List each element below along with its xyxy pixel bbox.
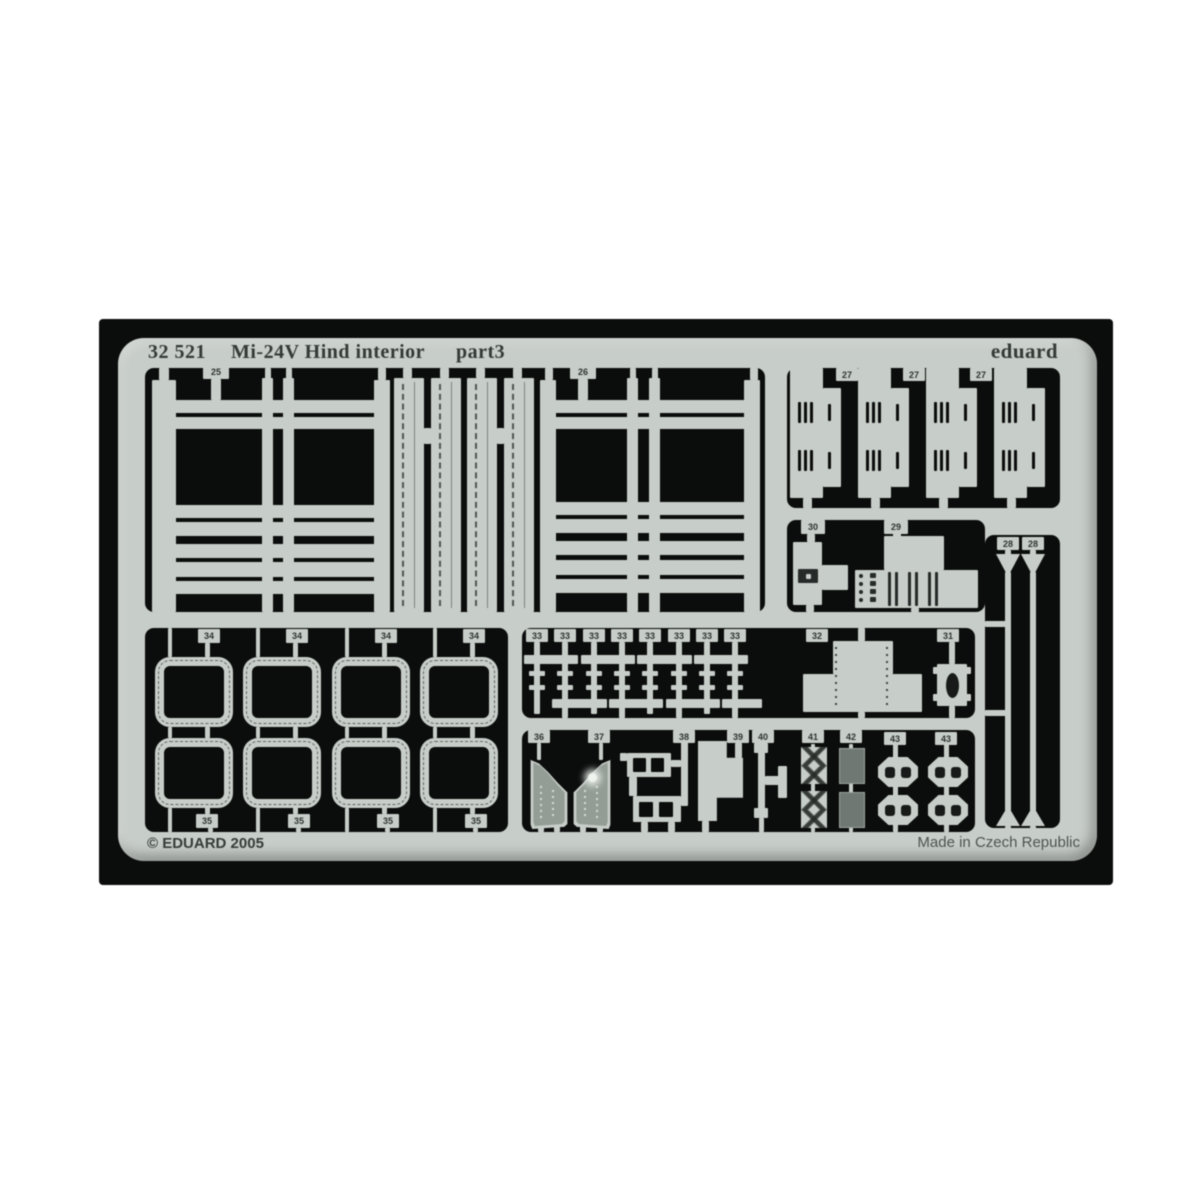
part-label-32: 32 — [806, 629, 828, 642]
etched-slot — [872, 402, 875, 423]
sprue-tab — [1030, 826, 1036, 832]
stitch-texture — [158, 741, 230, 805]
sprue-runner — [433, 808, 437, 832]
etched-slot — [828, 404, 831, 421]
part-27-panel — [959, 388, 977, 487]
sprue-tab — [985, 710, 1007, 716]
part-43-plate — [878, 795, 918, 825]
etched-slot — [1014, 402, 1017, 423]
part-label-33: 33 — [554, 629, 576, 642]
part-25-rail — [152, 544, 390, 558]
etched-slot — [804, 402, 807, 423]
pocket-28 — [985, 535, 1060, 828]
part-label-34: 34 — [286, 629, 308, 643]
sprue-tab — [803, 498, 812, 508]
part-26-post — [540, 380, 556, 612]
sprue-tab — [286, 368, 292, 380]
part-34-35-frame — [243, 738, 321, 808]
sprue-tab — [538, 826, 544, 832]
rivet-dots — [596, 786, 598, 822]
brand-logo: eduard — [938, 339, 1058, 364]
part-33-crossbar — [586, 671, 602, 676]
part-label-35: 35 — [377, 814, 399, 828]
fold-line — [402, 384, 404, 606]
fold-strip — [431, 378, 461, 612]
fold-strip — [394, 378, 424, 612]
rivet-dots — [584, 790, 586, 820]
etched-line — [888, 572, 891, 606]
sprue-tab — [858, 628, 865, 641]
part-label-33: 33 — [639, 629, 661, 642]
sprue-tab — [620, 753, 627, 761]
part-25-rail — [152, 522, 390, 536]
sprue-tab — [378, 368, 386, 380]
part-33-crossbar — [727, 685, 743, 690]
part-31-nub — [966, 694, 971, 701]
sprue-tab — [211, 379, 221, 400]
sprue-tab — [440, 368, 449, 378]
part-33-pin — [534, 642, 540, 714]
etched-slot — [798, 450, 801, 471]
part-label-38: 38 — [673, 730, 695, 743]
part-28-rod — [1030, 572, 1036, 811]
sprue-tab — [497, 428, 504, 444]
sprue-tab — [403, 368, 412, 378]
stitch-texture — [246, 741, 318, 805]
part-32-top — [833, 641, 893, 674]
sprue-tab — [205, 806, 210, 814]
etched-slot — [810, 402, 813, 423]
part-label-43: 43 — [884, 732, 906, 745]
sprue-tab — [652, 368, 658, 380]
part-34-35-frame — [155, 657, 233, 727]
part-25-rail — [152, 581, 390, 594]
part-27-panel — [790, 368, 823, 498]
sprue-runner — [256, 628, 260, 657]
sprue-tab — [1007, 498, 1016, 508]
part-26-rail — [540, 502, 760, 515]
part-25-rail — [152, 400, 390, 413]
part-label-36: 36 — [528, 730, 550, 743]
sprue-tab — [205, 643, 210, 657]
etch-line — [487, 382, 488, 608]
sheet-title: Mi-24V Hind interior — [231, 341, 425, 364]
fold-line — [475, 384, 477, 606]
part-26-rail — [540, 560, 760, 575]
sprue-tab — [470, 643, 475, 657]
cut-hole — [651, 758, 664, 772]
stitch-texture — [158, 660, 230, 724]
sprue-tab — [597, 826, 603, 832]
part-42-plate — [839, 792, 865, 828]
part-30-arm — [822, 565, 848, 590]
x-etch — [801, 766, 827, 785]
part-25-post — [152, 380, 176, 612]
part-label-35: 35 — [288, 814, 310, 828]
sprue-tab — [939, 498, 948, 508]
part-25-rail — [152, 562, 390, 577]
part-41-plate — [801, 747, 827, 784]
etched-slot — [1002, 450, 1005, 471]
part-33-crossbar — [699, 685, 715, 690]
etched-slot — [1008, 402, 1011, 423]
part-label-40: 40 — [752, 730, 774, 743]
etched-dot — [859, 598, 863, 602]
part-label-27: 27 — [970, 368, 992, 381]
part-26-rail — [540, 541, 760, 555]
x-etch — [801, 810, 827, 829]
part-label-43: 43 — [935, 732, 957, 745]
part-34-35-frame — [420, 657, 498, 727]
glare-spot — [588, 773, 597, 782]
part-33-topbar — [637, 655, 692, 664]
part-33-crossbar — [614, 685, 630, 690]
etched-slot — [896, 452, 899, 469]
part-43-plate — [928, 795, 968, 825]
sheet-code: 32 521 — [148, 341, 206, 364]
cut-hole — [951, 805, 961, 816]
rivet-dots — [540, 786, 542, 822]
part-34-35-frame — [420, 738, 498, 808]
part-label-42: 42 — [840, 730, 862, 743]
etched-slot — [810, 450, 813, 471]
sprue-runner — [168, 727, 172, 738]
cut-hole — [901, 767, 911, 778]
sprue-tab — [554, 826, 560, 832]
part-33-topbar — [694, 655, 748, 664]
sprue-tab — [732, 708, 738, 718]
etched-slot — [964, 452, 967, 469]
sprue-tab — [470, 806, 475, 814]
part-43-plate — [878, 757, 918, 787]
etched-line — [935, 572, 938, 606]
etched-slot — [804, 450, 807, 471]
part-33-crossbar — [586, 685, 602, 690]
part-41-plate — [801, 791, 827, 828]
sprue-tab — [562, 708, 568, 718]
part-label-31: 31 — [937, 629, 959, 642]
sprue-tab — [1005, 826, 1011, 832]
etched-slot — [878, 402, 881, 423]
sprue-runner — [433, 727, 437, 738]
sprue-tab — [545, 368, 553, 380]
cut-hole — [885, 805, 895, 816]
sprue-tab — [382, 806, 387, 814]
etched-slot — [1014, 450, 1017, 471]
sprue-tab — [293, 643, 298, 657]
sprue-tab — [599, 743, 603, 760]
etched-slot — [934, 450, 937, 471]
fold-strip — [504, 378, 534, 612]
cut-hole — [885, 767, 895, 778]
part-label-37: 37 — [588, 730, 610, 743]
part-25-post — [374, 380, 390, 612]
sprue-tab — [949, 642, 955, 664]
sprue-tab — [385, 828, 390, 832]
fold-strip — [467, 378, 497, 612]
part-label-33: 33 — [724, 629, 746, 642]
sprue-tab — [208, 828, 213, 832]
sprue-tab — [578, 379, 588, 400]
part-28-rod — [1005, 572, 1011, 811]
part-label-35: 35 — [196, 814, 218, 828]
x-etch — [801, 791, 827, 810]
sprue-tab — [759, 818, 764, 832]
sprue-tab — [265, 368, 271, 380]
etched-line — [908, 572, 911, 606]
part-26-post — [627, 378, 638, 612]
part-27-panel — [891, 388, 909, 487]
part-38-link — [629, 777, 637, 796]
etched-slot — [896, 404, 899, 421]
sprue-runner — [256, 808, 260, 832]
sprue-runner — [433, 628, 437, 657]
part-33-topbar — [524, 655, 578, 664]
part-27-panel — [926, 368, 959, 498]
part-31-nub — [966, 667, 971, 674]
etched-slot — [1002, 402, 1005, 423]
sprue-tab — [735, 743, 742, 758]
part-26-rail — [540, 579, 760, 593]
part-32-base — [803, 674, 922, 712]
stitch-texture — [335, 660, 407, 724]
sprue-tab — [702, 821, 709, 832]
sprue-tab — [807, 534, 815, 542]
part-33-crossbar — [557, 671, 573, 676]
part-25-rail — [152, 505, 390, 518]
part-25-rail — [152, 417, 390, 429]
part-33-botbar — [609, 699, 663, 708]
fold-dots — [835, 647, 837, 708]
parts-layer: 2526272727282830293231333333333333333334… — [0, 0, 1200, 1200]
copyright-text: © EDUARD 2005 — [147, 835, 264, 852]
sprue-tab — [641, 822, 648, 832]
stitch-texture — [423, 660, 495, 724]
cut-hole — [935, 767, 945, 778]
part-33-crossbar — [529, 671, 545, 676]
cut-hole — [639, 802, 653, 817]
sprue-runner — [345, 727, 349, 738]
part-label-33: 33 — [668, 629, 690, 642]
etched-slot — [946, 402, 949, 423]
part-label-26: 26 — [570, 364, 596, 379]
part-label-30: 30 — [801, 520, 825, 534]
part-label-39: 39 — [727, 730, 749, 743]
part-33-crossbar — [671, 685, 687, 690]
made-in-text: Made in Czech Republic — [840, 834, 1080, 851]
sprue-runner — [345, 808, 349, 832]
fold-line — [439, 384, 441, 606]
etched-square — [870, 589, 876, 594]
part-label-41: 41 — [802, 730, 824, 743]
etched-slot — [798, 402, 801, 423]
part-40-arm — [765, 776, 779, 785]
sprue-tab — [985, 621, 1007, 627]
part-34-35-frame — [332, 738, 410, 808]
part-43-plate — [928, 757, 968, 787]
part-33-crossbar — [642, 671, 658, 676]
etched-line — [928, 572, 931, 606]
cut-hole — [633, 758, 646, 772]
etched-slot — [1032, 404, 1035, 421]
part-label-27: 27 — [836, 368, 858, 381]
sprue-tab — [382, 643, 387, 657]
part-42-plate — [839, 748, 865, 784]
cut-hole — [951, 767, 961, 778]
sprue-runner — [168, 628, 172, 657]
part-29-top — [884, 536, 944, 570]
part-label-28: 28 — [997, 537, 1019, 550]
etched-line — [895, 572, 898, 606]
sprue-runner — [168, 808, 172, 832]
part-26-rail — [540, 519, 760, 533]
etched-dot — [859, 590, 863, 594]
sprue-tab — [382, 727, 387, 738]
part-33-crossbar — [671, 671, 687, 676]
part-34-35-frame — [332, 657, 410, 727]
etched-square — [870, 573, 876, 578]
etched-slot — [964, 404, 967, 421]
sprue-tab — [424, 428, 431, 444]
etch-line — [524, 382, 525, 608]
part-26-post — [744, 380, 760, 612]
sprue-tab — [476, 368, 485, 378]
part-26-post — [649, 378, 660, 612]
part-33-crossbar — [642, 685, 658, 690]
sprue-tab — [676, 708, 682, 718]
part-34-35-frame — [243, 657, 321, 727]
sprue-tab — [668, 822, 675, 832]
part-label-33: 33 — [696, 629, 718, 642]
rivet-dots — [552, 790, 554, 820]
etched-line — [915, 572, 918, 606]
part-27-panel — [858, 368, 891, 498]
sheet-part-number: part3 — [456, 341, 505, 364]
photoetch-product-photo: 32 521 Mi-24V Hind interior part3 eduard… — [0, 0, 1200, 1200]
sprue-tab — [293, 806, 298, 814]
etched-slot — [828, 452, 831, 469]
sprue-runner — [681, 741, 688, 806]
sprue-tab — [630, 368, 636, 380]
sprue-tab — [159, 368, 169, 380]
stitch-texture — [335, 741, 407, 805]
sprue-tab — [750, 368, 758, 380]
part-40-end — [754, 808, 768, 818]
part-label-34: 34 — [463, 629, 485, 643]
sprue-tab — [293, 727, 298, 738]
part-33-crossbar — [529, 685, 545, 690]
part-31-nub — [933, 667, 938, 674]
part-label-33: 33 — [583, 629, 605, 642]
part-27-panel — [1027, 388, 1045, 487]
part-label-34: 34 — [198, 629, 220, 643]
sprue-tab — [296, 828, 301, 832]
part-26-rail — [540, 417, 760, 429]
sprue-tab — [871, 498, 880, 508]
etched-dot — [859, 574, 863, 578]
etched-slot — [866, 450, 869, 471]
etched-slot — [940, 450, 943, 471]
part-27-panel — [823, 388, 841, 487]
cut-hole — [935, 805, 945, 816]
sprue-tab — [911, 608, 919, 612]
part-31-nub — [933, 694, 938, 701]
etched-dot — [859, 582, 863, 586]
etched-slot — [1008, 450, 1011, 471]
stitch-texture — [423, 741, 495, 805]
part-33-crossbar — [727, 671, 743, 676]
cut-hole — [901, 805, 911, 816]
part-33-topbar — [581, 655, 635, 664]
cut-hole — [659, 802, 673, 817]
etched-slot — [872, 450, 875, 471]
stitch-texture — [246, 660, 318, 724]
sprue-runner — [345, 628, 349, 657]
part-33-crossbar — [614, 671, 630, 676]
part-label-27: 27 — [903, 368, 925, 381]
part-33-crossbar — [557, 685, 573, 690]
sprue-tab — [858, 712, 865, 718]
part-33-botbar — [722, 699, 762, 708]
part-26-rail — [540, 400, 760, 413]
sprue-tab — [513, 368, 522, 378]
part-label-33: 33 — [611, 629, 633, 642]
etched-slot — [1032, 452, 1035, 469]
part-33-crossbar — [699, 671, 715, 676]
etched-square — [870, 581, 876, 586]
part-label-28: 28 — [1022, 537, 1044, 550]
sprue-tab — [671, 760, 681, 767]
sprue-tab — [806, 605, 814, 612]
cut-oval — [946, 673, 959, 698]
sprue-runner — [256, 727, 260, 738]
part-label-25: 25 — [203, 364, 229, 379]
etch-line — [414, 382, 415, 608]
x-etch — [801, 747, 827, 766]
part-33-botbar — [666, 699, 720, 708]
sprue-tab — [473, 828, 478, 832]
part-40-arm — [778, 766, 787, 798]
sprue-tab — [580, 826, 586, 832]
part-27-panel — [994, 368, 1027, 498]
etch-line — [451, 382, 452, 608]
etched-slot — [940, 402, 943, 423]
part-label-33: 33 — [526, 629, 548, 642]
fold-line — [512, 384, 514, 606]
fold-dots — [886, 647, 888, 708]
etched-dot — [806, 574, 811, 579]
part-33-botbar — [552, 699, 607, 708]
part-label-34: 34 — [375, 629, 397, 643]
etched-slot — [946, 450, 949, 471]
sprue-tab — [949, 706, 955, 718]
sprue-tab — [537, 743, 541, 760]
etched-slot — [934, 402, 937, 423]
part-label-35: 35 — [465, 814, 487, 828]
sprue-tab — [470, 727, 475, 738]
part-34-35-frame — [155, 738, 233, 808]
part-label-29: 29 — [884, 520, 908, 534]
etched-slot — [878, 450, 881, 471]
etched-slot — [866, 402, 869, 423]
etched-square — [870, 597, 876, 602]
sprue-tab — [619, 708, 625, 718]
sprue-tab — [205, 727, 210, 738]
